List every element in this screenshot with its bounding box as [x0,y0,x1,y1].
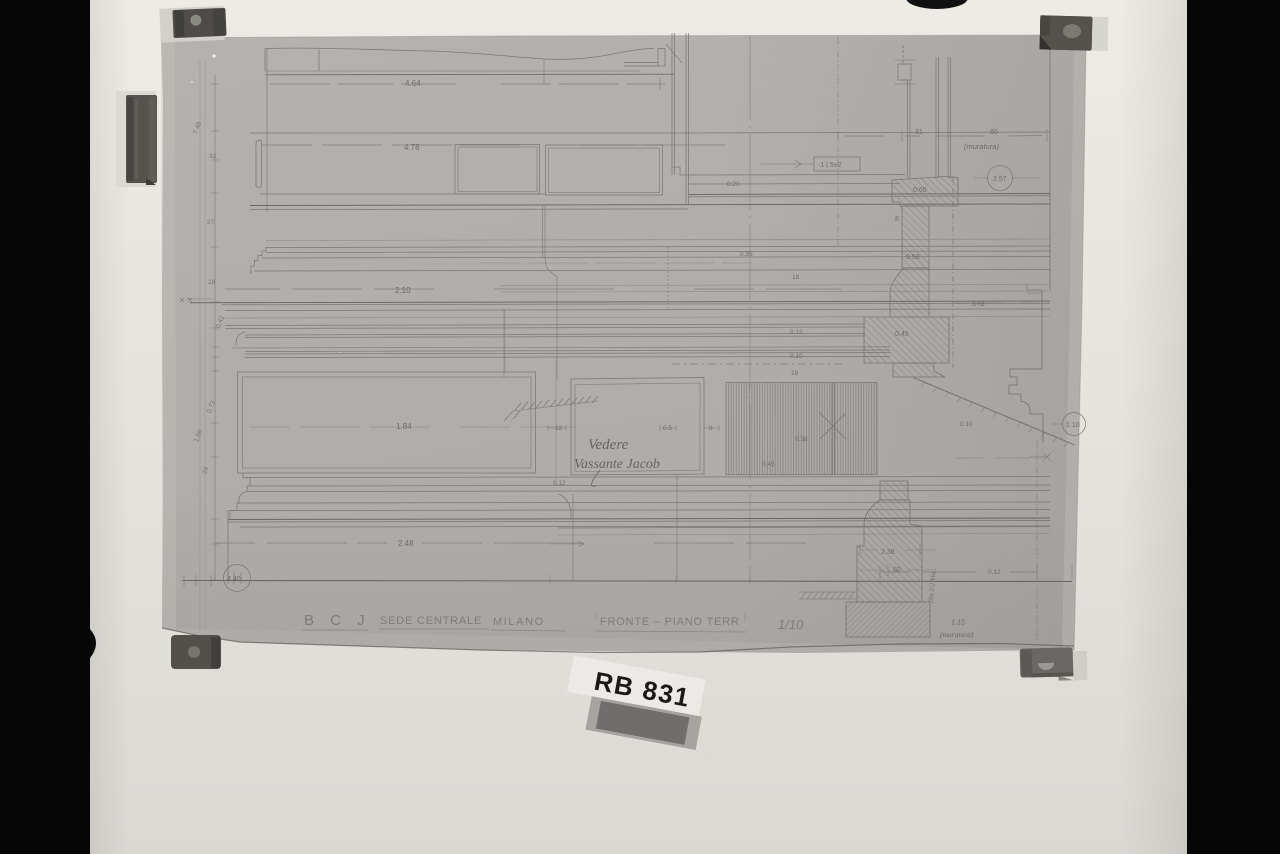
svg-text:1/10: 1/10 [778,617,804,632]
svg-text:12: 12 [555,425,563,432]
svg-text:0.20: 0.20 [727,181,740,188]
svg-text:0,45: 0,45 [762,461,775,468]
svg-text:28: 28 [208,279,216,286]
svg-text:2.57: 2.57 [993,176,1007,183]
svg-text:18: 18 [791,370,799,377]
svg-text:1.15: 1.15 [951,618,965,627]
svg-text:60: 60 [990,129,998,136]
svg-text:8: 8 [709,425,713,432]
svg-text:2.38: 2.38 [881,549,895,556]
svg-text:18: 18 [792,274,800,281]
svg-text:0.45: 0.45 [895,331,909,338]
svg-text:4.78: 4.78 [404,143,420,152]
svg-text:0.95: 0.95 [740,251,753,258]
svg-text:FRONTE – PIANO TERR: FRONTE – PIANO TERR [600,616,740,628]
svg-text:60: 60 [893,567,901,574]
svg-text:0.12: 0.12 [790,329,803,336]
svg-text:1.10: 1.10 [1066,422,1080,429]
svg-text:0.10: 0.10 [960,421,973,428]
svg-text:27: 27 [207,219,215,226]
svg-text:4.40: 4.40 [227,576,241,583]
svg-text:6+8: 6+8 [972,299,985,308]
svg-text:B C J: B C J [304,612,371,629]
svg-text:32: 32 [209,153,217,160]
svg-text:(muratura): (muratura) [940,630,974,639]
svg-text:-1 | 5±2: -1 | 5±2 [818,162,842,169]
svg-text:1.84: 1.84 [396,422,412,431]
svg-text:0.12: 0.12 [988,569,1001,576]
svg-text:Vassante Jacob: Vassante Jacob [574,457,660,472]
svg-text:4.64: 4.64 [405,79,421,88]
svg-text:SEDE CENTRALE: SEDE CENTRALE [380,615,482,627]
svg-text:2.10: 2.10 [395,286,411,295]
svg-text:Vedere: Vedere [588,437,629,453]
svg-text:0.12: 0.12 [553,480,566,487]
svg-text:0.10: 0.10 [790,353,803,360]
svg-text:MILANO: MILANO [493,616,545,628]
svg-text:0.5: 0.5 [663,425,672,432]
svg-text:0.58: 0.58 [795,436,808,443]
svg-text:8: 8 [895,216,899,223]
svg-text:(muratura): (muratura) [964,142,1000,151]
svg-text:0.58: 0.58 [906,254,920,261]
svg-text:2.48: 2.48 [398,539,414,548]
svg-text:31: 31 [915,129,923,136]
svg-text:0.60: 0.60 [913,187,927,194]
